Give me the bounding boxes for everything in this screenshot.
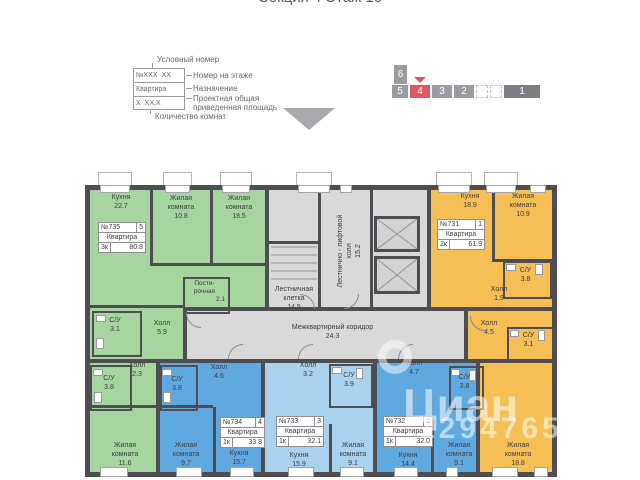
window-marker: [534, 467, 548, 477]
room-area: 4.7: [392, 369, 436, 378]
balcony-marker: [163, 172, 192, 186]
apartment-info-box: №7322 Квартира 1к32.0: [383, 416, 433, 447]
window-marker: [438, 185, 470, 193]
room-name: С/У: [331, 372, 367, 381]
room-label: Жилая комната 9.7: [158, 442, 214, 468]
room-label: Жилая комната 9.1: [432, 442, 486, 468]
wall: [150, 190, 153, 265]
apartment-info-box: №7355 Квартира 3к80.8: [98, 222, 146, 253]
scroll-down-arrow-icon[interactable]: [283, 108, 335, 130]
apartment-number: №734: [221, 418, 256, 427]
legend-floor-number-note: Номер на этаже: [193, 71, 253, 80]
room-name: Кухня: [213, 450, 265, 459]
legend-connector: [150, 110, 151, 114]
room-name: Лестничная клетка: [267, 286, 321, 304]
room-name: Кухня: [381, 452, 435, 461]
room-name: Холл: [286, 362, 330, 371]
room-area: 2.1: [184, 296, 225, 304]
window-marker: [100, 467, 128, 477]
room-label: С/У 3.8: [449, 374, 480, 392]
room-area: 9.1: [432, 460, 486, 469]
apartment-floor-pos: 4: [256, 418, 264, 427]
toilet-icon: [163, 392, 171, 403]
section-box-1[interactable]: 1: [504, 85, 540, 98]
apartment-total-area: 80.8: [111, 243, 145, 252]
apartment-info-box: №7344 Квартира 1к33.8: [220, 417, 265, 448]
wall: [427, 190, 431, 311]
legend-sample-box: №XXXXX Квартира XXX,X: [133, 68, 185, 110]
apartment-type: Квартира: [438, 230, 484, 239]
section-box-5[interactable]: 5: [392, 85, 408, 98]
apartment-type: Квартира: [277, 427, 323, 436]
apartment-total-area: 32.1: [289, 437, 323, 446]
apartment-type: Квартира: [221, 428, 264, 437]
room-label: С/У 3.8: [161, 376, 193, 394]
room-label: С/У 3.1: [509, 332, 548, 350]
window-marker: [530, 185, 546, 193]
room-label: Жилая комната 9.1: [326, 442, 380, 468]
room-name: Жилая комната: [432, 442, 486, 460]
room-area: 3.1: [94, 326, 136, 335]
window-marker: [298, 185, 330, 193]
legend-area-note: Проектная общая приведенная площадь: [193, 94, 277, 112]
room-label: Жилая комната 18.5: [212, 195, 266, 221]
room-name: С/У: [449, 374, 480, 383]
wall: [183, 307, 552, 311]
room-area: 3.8: [449, 383, 480, 392]
room-area: 5.9: [140, 329, 184, 338]
room-name: Холл: [140, 320, 184, 329]
section-box-2[interactable]: 2: [454, 85, 474, 98]
room-label: Пости- рочная 2.1: [184, 280, 225, 304]
room-area: 18.8: [489, 460, 547, 469]
section-box-placeholder: [476, 85, 488, 98]
room-name: Жилая комната: [212, 195, 266, 213]
room-label: Холл 5.9: [140, 320, 184, 338]
room-label: Жилая комната 11.6: [96, 442, 154, 468]
room-area: 9.1: [326, 460, 380, 469]
window-marker: [100, 185, 130, 193]
room-area: 15.7: [213, 459, 265, 468]
room-label: С/У 3.9: [331, 372, 367, 390]
room-name: Кухня: [92, 194, 150, 203]
room-name: С/У: [505, 267, 546, 276]
room-area: 10.9: [496, 211, 550, 220]
room-label: Холл 3.2: [286, 362, 330, 380]
sink-icon: [162, 369, 172, 376]
room-area: 4.6: [196, 373, 242, 382]
room-label: Жилая комната 10.8: [154, 195, 208, 221]
window-marker: [492, 467, 518, 477]
room-area: 14.4: [381, 461, 435, 470]
room-area: 3.2: [286, 371, 330, 380]
window-marker: [165, 185, 190, 193]
room-area: 14.5: [267, 304, 321, 313]
room-area: 9.7: [158, 460, 214, 469]
legend-box-floor-pos: XX: [160, 72, 173, 79]
legend-connector: [186, 75, 192, 76]
room-name: Жилая комната: [326, 442, 380, 460]
room-label: Жилая комната 18.8: [489, 442, 547, 468]
apartment-rooms: 3к: [99, 243, 111, 252]
room-name: Холл: [480, 286, 518, 295]
apartment-type: Квартира: [99, 233, 145, 242]
room-area: 3.8: [92, 384, 126, 393]
apartment-info-box: №7311 Квартира 2к61.9: [437, 219, 485, 250]
apartment-rooms: 2к: [438, 240, 450, 249]
room-label: С/У 3.8: [505, 267, 546, 285]
room-name: Холл: [114, 362, 160, 371]
room-label: Жилая комната 10.9: [496, 193, 550, 219]
legend-purpose-note: Назначение: [193, 84, 237, 93]
room-label: Холл 4.5: [468, 320, 510, 338]
apartment-floor-pos: 2: [424, 417, 432, 426]
room-label: Кухня 18.9: [444, 193, 496, 211]
room-name: Пости- рочная: [184, 280, 225, 296]
room-name: Кухня: [272, 452, 326, 461]
room-name: Холл: [392, 360, 436, 369]
elevator-shaft-icon: [374, 216, 420, 252]
toilet-icon: [96, 338, 104, 349]
room-label: Кухня 15.9: [272, 452, 326, 470]
room-area: 18.9: [444, 202, 496, 211]
window-marker: [222, 185, 250, 193]
apartment-total-area: 32.0: [396, 437, 432, 446]
room-name: Жилая комната: [489, 442, 547, 460]
floor-plan-page: { "title": "Секция 4 Этаж 10", "legend":…: [0, 0, 640, 480]
room-label: Холл 4.7: [392, 360, 436, 378]
room-name: Межквартирный коридор: [240, 324, 425, 333]
balcony-marker: [98, 172, 132, 186]
room-area: 18.5: [212, 213, 266, 222]
room-area: 10.8: [154, 213, 208, 222]
room-name: С/У: [94, 317, 136, 326]
room-name: Холл: [468, 320, 510, 329]
room-area: 22.7: [92, 203, 150, 212]
page-title: Секция 4 Этаж 10: [0, 0, 640, 6]
room-label: С/У 3.1: [94, 317, 136, 335]
balcony-marker: [296, 172, 332, 186]
room-name: Жилая комната: [496, 193, 550, 211]
apartment-number: №731: [438, 220, 476, 229]
apartment-number: №735: [99, 223, 137, 232]
room-area: 11.6: [96, 460, 154, 469]
wall: [90, 305, 183, 308]
window-marker: [230, 467, 254, 477]
legend-box-area: XX,X: [143, 100, 163, 107]
legend-box-purpose: Квартира: [134, 86, 168, 93]
room-label: Лестнично - лифтовой холл 15.2: [337, 193, 363, 309]
apartment-type: Квартира: [384, 427, 432, 436]
apartment-floor-pos: 3: [315, 417, 323, 426]
room-area: 15.2: [355, 193, 364, 309]
legend-box-number: №XXX: [134, 72, 160, 79]
apartment-info-box: №7333 Квартира 1к32.1: [276, 416, 324, 447]
legend-box-rooms: X: [134, 100, 143, 107]
apartment-total-area: 33.8: [233, 438, 264, 447]
window-marker: [446, 467, 458, 477]
room-label: Кухня 15.7: [213, 450, 265, 468]
wall: [268, 241, 318, 244]
room-name: Жилая комната: [96, 442, 154, 460]
balcony-marker: [436, 172, 472, 186]
balcony-marker: [484, 172, 518, 186]
balcony-marker: [220, 172, 252, 186]
legend-connector: [186, 98, 192, 99]
elevator-shaft-icon: [374, 256, 420, 294]
toilet-icon: [94, 392, 102, 403]
section-pointer-icon: [414, 77, 426, 83]
room-label: Холл 4.6: [196, 364, 242, 382]
apartment-rooms: 1к: [384, 437, 396, 446]
room-name: Лестнично - лифтовой холл: [337, 193, 355, 309]
room-name: С/У: [92, 375, 126, 384]
room-area: 3.1: [509, 341, 548, 350]
room-area: 24.3: [240, 333, 425, 342]
window-marker: [176, 467, 202, 477]
room-area: 15.9: [272, 461, 326, 470]
apartment-floor-pos: 1: [476, 220, 484, 229]
room-label: Кухня 14.4: [381, 452, 435, 470]
room-name: С/У: [161, 376, 193, 385]
section-box-3[interactable]: 3: [432, 85, 452, 98]
room-label: С/У 3.8: [92, 375, 126, 393]
room-name: Жилая комната: [154, 195, 208, 213]
apartment-rooms: 1к: [277, 437, 289, 446]
room-name: Кухня: [444, 193, 496, 202]
legend-connector: [186, 88, 192, 89]
room-label: Лестничная клетка 14.5: [267, 286, 321, 312]
room-name: Жилая комната: [158, 442, 214, 460]
legend-rooms-count-note: Количество комнат: [155, 112, 226, 121]
section-box-placeholder: [490, 85, 502, 98]
room-label: Межквартирный коридор 24.3: [240, 324, 425, 342]
window-marker: [340, 185, 352, 193]
room-label: Холл 1.9: [480, 286, 518, 304]
apartment-floor-pos: 5: [137, 223, 145, 232]
room-area: 4.5: [468, 329, 510, 338]
legend-conditional-number-label: Условный номер: [157, 55, 219, 64]
wall: [150, 263, 268, 266]
apartment-number: №732: [384, 417, 424, 426]
room-area: 3.8: [161, 385, 193, 394]
window-marker: [486, 185, 516, 193]
section-box-6[interactable]: 6: [394, 65, 407, 84]
wall: [370, 190, 373, 311]
apartment-rooms: 1к: [221, 438, 233, 447]
apartment-number: №733: [277, 417, 315, 426]
section-box-4-active[interactable]: 4: [410, 85, 430, 98]
room-label: Кухня 22.7: [92, 194, 150, 212]
room-area: 1.9: [480, 295, 518, 304]
room-area: 3.8: [505, 276, 546, 285]
window-marker: [340, 467, 364, 477]
room-name: С/У: [509, 332, 548, 341]
apartment-total-area: 61.9: [450, 240, 484, 249]
room-area: 3.9: [331, 381, 367, 390]
room-name: Холл: [196, 364, 242, 373]
